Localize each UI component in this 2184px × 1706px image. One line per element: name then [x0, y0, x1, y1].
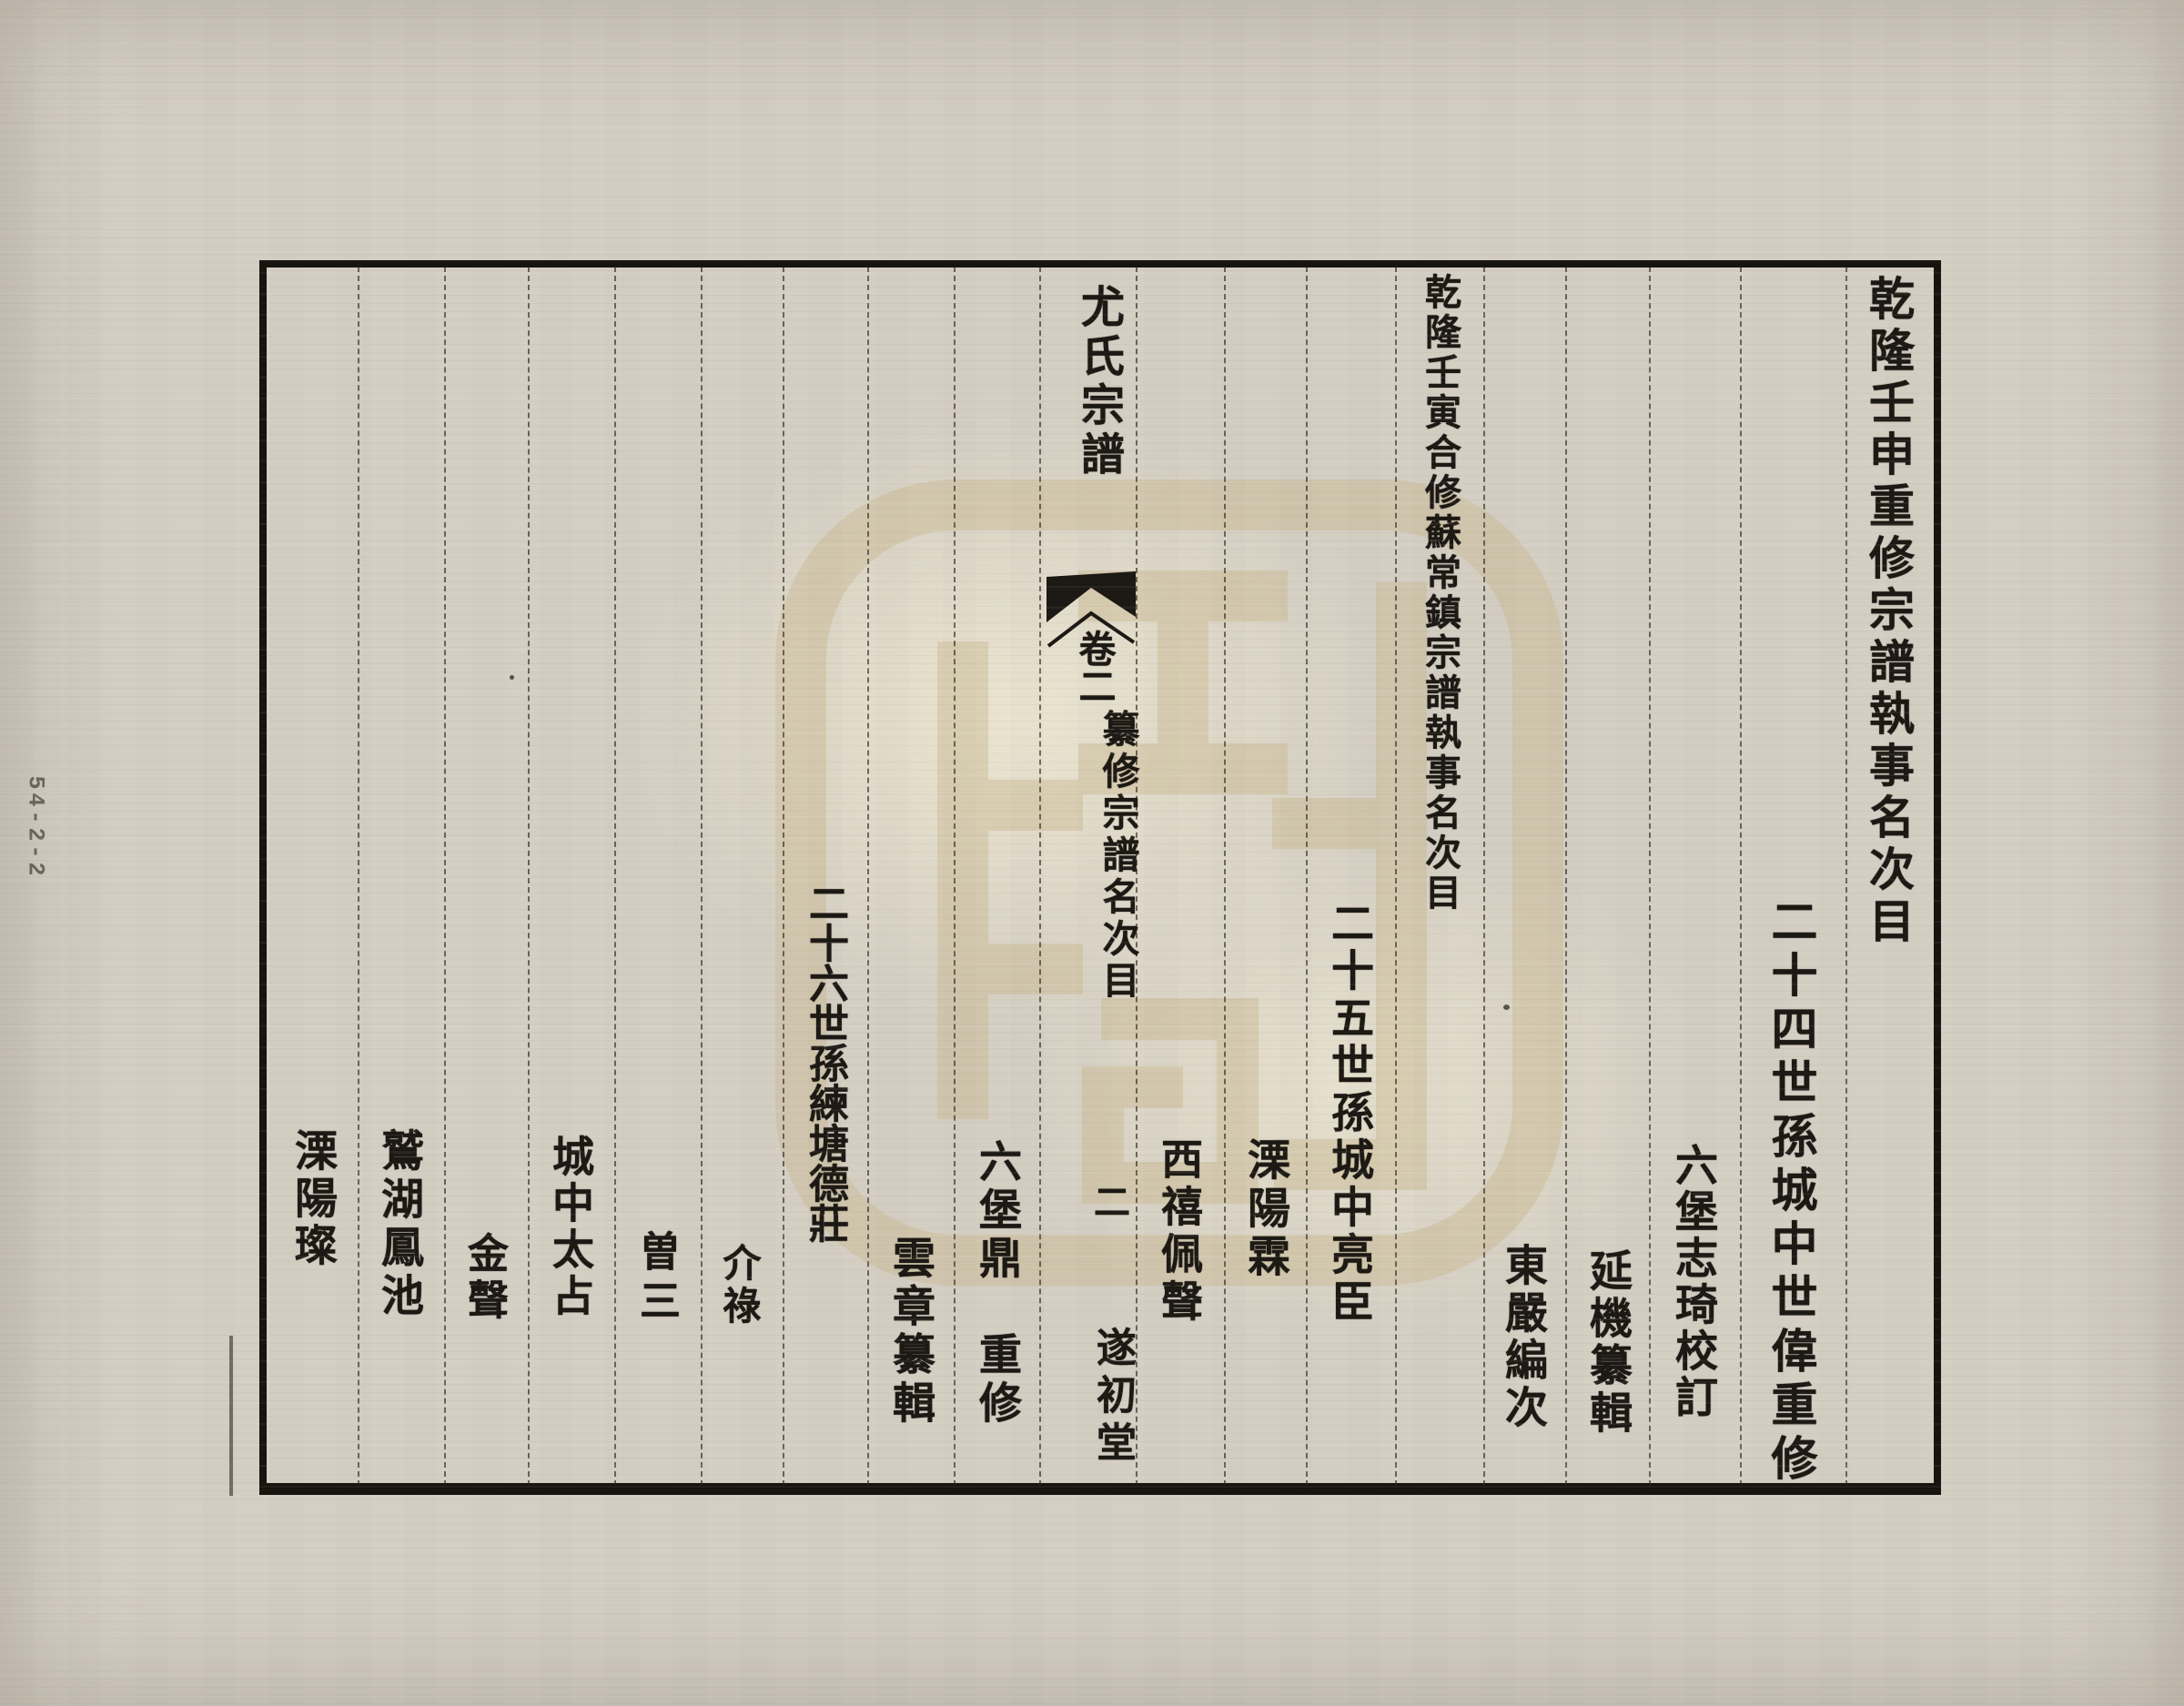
column-rule	[867, 267, 869, 1486]
column-rule	[1483, 267, 1485, 1486]
scan-speck	[1503, 1004, 1510, 1010]
banxin-section-title: 纂修宗譜名次目	[1098, 710, 1136, 1003]
banxin-book-title: 尤氏宗譜	[1077, 284, 1120, 480]
column-rule	[701, 267, 703, 1486]
column-rule	[614, 267, 616, 1486]
banxin-page-number: 二	[1090, 1183, 1127, 1219]
left-col-chengzhong-taizhan: 城中太占	[550, 1135, 591, 1320]
right-col-24th-gen-shiwei: 二十四世孫城中世偉重修	[1766, 897, 1813, 1488]
right-col-qianlong-renshen-heading: 乾隆壬申重修宗譜執事名次目	[1865, 275, 1911, 949]
column-rule	[1565, 267, 1567, 1486]
column-rule	[1224, 267, 1226, 1486]
right-col-zhiqi-proofread: 六堡志琦校訂	[1671, 1143, 1714, 1421]
scanned-genealogy-page: 54-2-2 乾隆壬申重修宗譜執事名次目 二十四世孫城中世偉重修 六堡志琦校訂 …	[0, 0, 2184, 1706]
left-col-liyang-can: 溧陽璨	[290, 1128, 333, 1270]
column-rule	[444, 267, 446, 1486]
right-col-dongyan-arrange: 東嚴編次	[1501, 1243, 1543, 1432]
column-rule	[1649, 267, 1651, 1486]
right-col-xixi-peisheng: 西禧佩聲	[1158, 1137, 1200, 1327]
column-rule	[1306, 267, 1308, 1486]
left-col-cengsan: 曽三	[636, 1230, 677, 1328]
banxin-volume-label: 卷二	[1075, 630, 1112, 704]
left-col-26th-gen-dezhuang: 二十六世孫練塘德莊	[804, 883, 844, 1243]
left-col-jielu: 介祿	[720, 1243, 758, 1328]
column-rule	[1039, 267, 1041, 1486]
left-col-liubao-ding-chongxiu: 六堡鼎 重修	[975, 1139, 1017, 1428]
left-col-jinsheng: 金聲	[464, 1232, 505, 1325]
archive-number-label: 54-2-2	[23, 775, 49, 879]
right-col-liyang-lin: 溧陽霖	[1243, 1137, 1286, 1282]
left-col-jiuhu-fengchi: 鷲湖鳳池	[377, 1128, 420, 1321]
column-rule	[954, 267, 955, 1486]
column-rule	[1845, 267, 1847, 1486]
page-fold-shadow-line	[229, 1336, 233, 1496]
column-rule	[783, 267, 784, 1486]
column-rule	[358, 267, 359, 1486]
banxin-hall-name: 遂初堂	[1092, 1327, 1132, 1469]
column-rule	[1740, 267, 1742, 1486]
column-rule	[1395, 267, 1397, 1486]
column-rule	[528, 267, 530, 1486]
right-col-25th-gen-liangchen: 二十五世孫城中亮臣	[1327, 901, 1370, 1327]
left-col-yunzhang-compile: 雲章纂輯	[888, 1236, 931, 1428]
right-col-yanji-compile: 延機纂輯	[1585, 1248, 1628, 1438]
right-col-qianlong-renyin-heading: 乾隆壬寅合修蘇常鎮宗譜執事名次目	[1421, 273, 1458, 914]
scan-speck	[510, 675, 514, 680]
